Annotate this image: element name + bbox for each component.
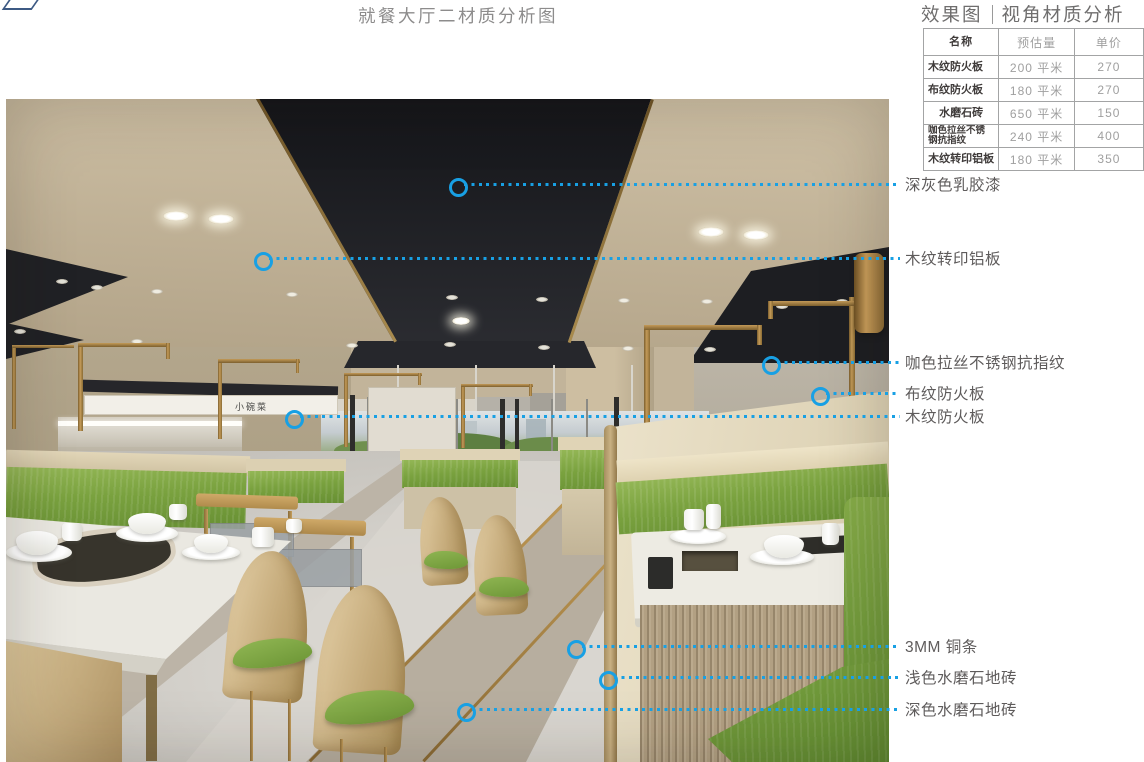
panel-title-right: 视角材质分析 [1002, 1, 1125, 27]
material-price: 150 [1074, 102, 1143, 125]
material-row: 水磨石砖650 平米150 [924, 102, 1144, 125]
material-row: 木纹防火板200 平米270 [924, 56, 1144, 79]
material-price: 270 [1074, 56, 1143, 79]
material-annotation-label: 浅色水磨石地砖 [905, 666, 1017, 688]
material-quantity: 650 平米 [999, 102, 1074, 125]
material-quantity: 180 平米 [999, 79, 1074, 102]
material-name: 木纹转印铝板 [924, 148, 999, 171]
material-name: 咖色拉丝不锈钢抗指纹 [924, 125, 999, 148]
material-name: 水磨石砖 [924, 102, 999, 125]
slide: 就餐大厅二材质分析图 效果图 视角材质分析 名称 预估量 单价 木纹防火板200… [0, 0, 1144, 762]
col-header-price: 单价 [1074, 29, 1143, 56]
material-annotation-label: 深灰色乳胶漆 [905, 173, 1001, 195]
panel-title: 效果图 视角材质分析 [921, 1, 1125, 27]
panel-title-divider [992, 5, 993, 24]
table-header-row: 名称 预估量 单价 [924, 29, 1144, 56]
material-row: 木纹转印铝板180 平米350 [924, 148, 1144, 171]
material-name: 布纹防火板 [924, 79, 999, 102]
scene-vignette [6, 99, 889, 762]
material-annotation-label: 3MM 铜条 [905, 635, 978, 657]
page-title: 就餐大厅二材质分析图 [358, 3, 558, 28]
rendered-interior-view: 小碗菜 [6, 99, 889, 762]
material-quantity: 180 平米 [999, 148, 1074, 171]
logo-partial-icon [2, 0, 45, 10]
materials-table: 名称 预估量 单价 木纹防火板200 平米270布纹防火板180 平米270水磨… [923, 28, 1144, 171]
material-name: 木纹防火板 [924, 56, 999, 79]
material-price: 270 [1074, 79, 1143, 102]
material-annotation-label: 木纹防火板 [905, 405, 985, 427]
material-price: 400 [1074, 125, 1143, 148]
material-price: 350 [1074, 148, 1143, 171]
material-annotation-label: 布纹防火板 [905, 382, 985, 404]
material-annotation-label: 木纹转印铝板 [905, 247, 1001, 269]
material-quantity: 240 平米 [999, 125, 1074, 148]
material-quantity: 200 平米 [999, 56, 1074, 79]
material-annotation-label: 深色水磨石地砖 [905, 698, 1017, 720]
col-header-quantity: 预估量 [999, 29, 1074, 56]
material-annotation-label: 咖色拉丝不锈钢抗指纹 [905, 351, 1065, 373]
material-row: 布纹防火板180 平米270 [924, 79, 1144, 102]
panel-title-left: 效果图 [921, 1, 983, 27]
col-header-name: 名称 [924, 29, 999, 56]
material-row: 咖色拉丝不锈钢抗指纹240 平米400 [924, 125, 1144, 148]
